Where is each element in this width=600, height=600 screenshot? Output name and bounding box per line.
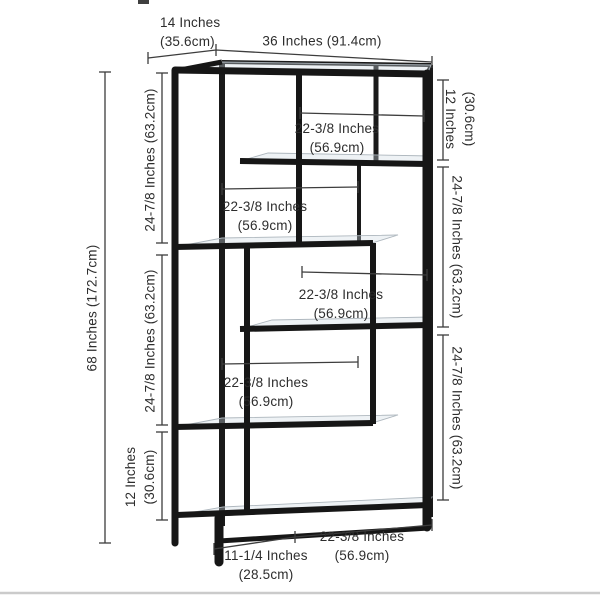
dim-label-right-middle: 24-7/8 Inches (63.2cm) bbox=[448, 175, 467, 318]
dim-label-shelf-2: 22-3/8 Inches (56.9cm) bbox=[223, 197, 307, 235]
image-crop-artifact bbox=[138, 0, 149, 4]
shelf-1-rail bbox=[240, 161, 428, 164]
dim-label-shelf-1: 22-3/8 Inches (56.9cm) bbox=[295, 119, 379, 157]
dim-label-left-middle: 24-7/8 Inches (63.2cm) bbox=[141, 269, 160, 412]
dim-label-bottom-shelf: 22-3/8 Inches (56.9cm) bbox=[320, 527, 404, 565]
dim-label-shelf-4: 22-3/8 Inches (56.9cm) bbox=[224, 373, 308, 411]
dimension-diagram: 14 Inches (35.6cm) 36 Inches (91.4cm) 68… bbox=[0, 0, 600, 600]
dim-label-left-lower: 12 Inches (30.6cm) bbox=[121, 447, 159, 507]
dim-label-right-lower: 24-7/8 Inches (63.2cm) bbox=[448, 346, 467, 489]
dim-label-height: 68 Inches (172.7cm) bbox=[83, 245, 102, 372]
shelf-3-rail bbox=[240, 325, 428, 329]
dim-label-depth: 14 Inches (35.6cm) bbox=[160, 13, 220, 51]
shelf-4-rail bbox=[175, 423, 373, 427]
dim-label-bottom-left: 11-1/4 Inches (28.5cm) bbox=[224, 546, 307, 584]
shelf-2-rail bbox=[175, 243, 373, 247]
dim-label-right-upper: (30.6cm) 12 Inches bbox=[441, 89, 479, 149]
dim-line-shelf-4 bbox=[222, 356, 358, 370]
dim-label-width: 36 Inches (91.4cm) bbox=[262, 32, 381, 51]
dim-label-left-upper: 24-7/8 Inches (63.2cm) bbox=[141, 88, 160, 231]
dim-line-shelf-3 bbox=[302, 266, 427, 281]
dim-label-shelf-3: 22-3/8 Inches (56.9cm) bbox=[299, 285, 383, 323]
dim-line-shelf-2 bbox=[222, 181, 358, 195]
